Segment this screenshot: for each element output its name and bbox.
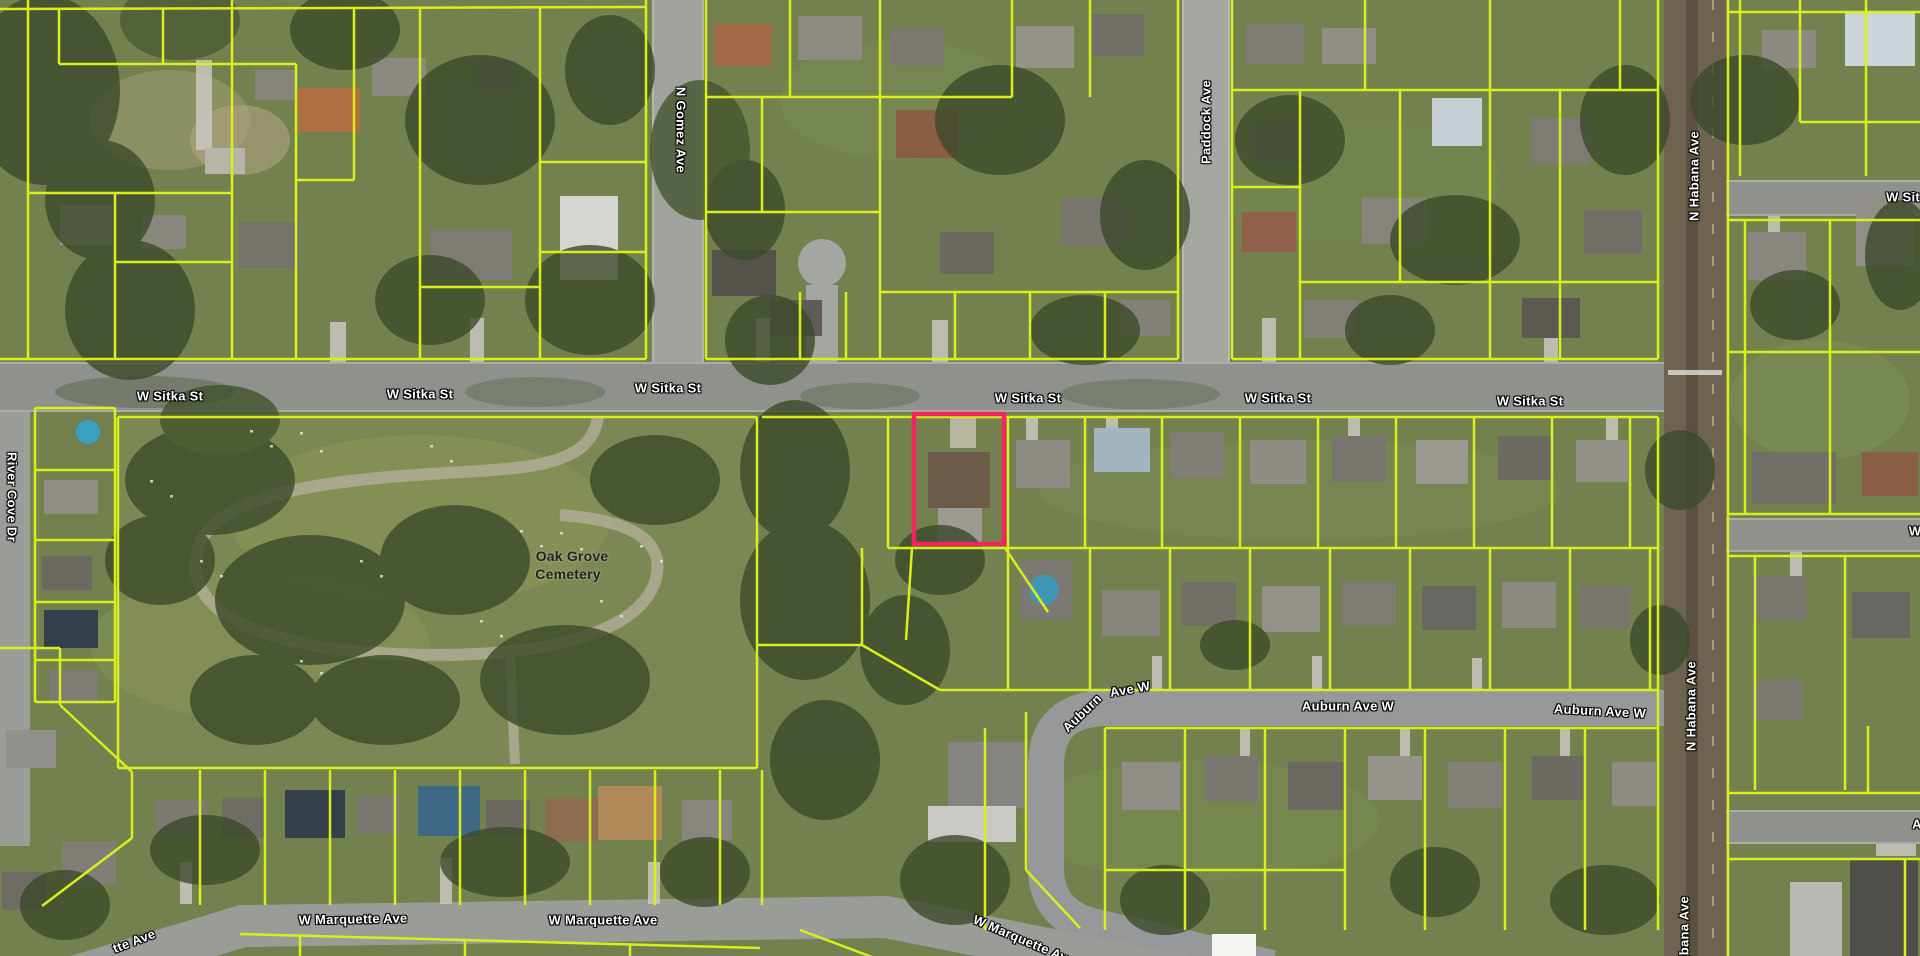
highlighted-parcel[interactable] [914,414,1004,544]
aerial-map[interactable]: W Sitka StW Sitka StW Sitka StW Sitka St… [0,0,1920,956]
highlight-layer [0,0,1920,956]
